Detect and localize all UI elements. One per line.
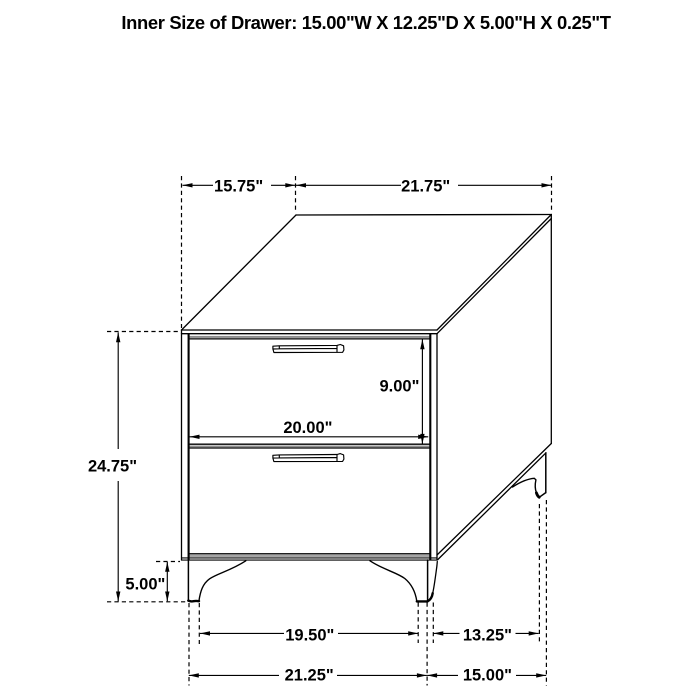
svg-text:20.00": 20.00" bbox=[283, 419, 332, 437]
svg-text:15.75": 15.75" bbox=[214, 178, 263, 196]
svg-text:21.75": 21.75" bbox=[401, 178, 450, 196]
svg-text:5.00": 5.00" bbox=[125, 576, 165, 594]
svg-text:21.25": 21.25" bbox=[285, 667, 334, 685]
svg-text:24.75": 24.75" bbox=[88, 457, 137, 475]
svg-text:Inner Size of Drawer: 15.00"W: Inner Size of Drawer: 15.00"W X 12.25"D … bbox=[121, 12, 611, 33]
svg-text:13.25": 13.25" bbox=[463, 627, 512, 645]
svg-text:19.50": 19.50" bbox=[285, 627, 334, 645]
svg-text:9.00": 9.00" bbox=[379, 378, 419, 396]
svg-text:15.00": 15.00" bbox=[463, 667, 512, 685]
